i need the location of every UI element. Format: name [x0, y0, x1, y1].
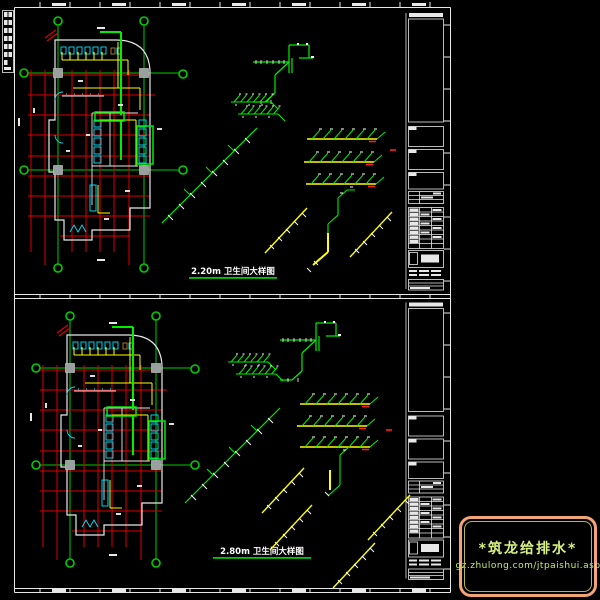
panel-top: 2.20m 卫生间大样图 — [18, 17, 396, 279]
drawing-title-bottom: 2.80m 卫生间大样图 — [220, 546, 304, 557]
drawing-title-top: 2.20m 卫生间大样图 — [191, 266, 275, 277]
cad-viewport: 2.20m 卫生间大样图 2.80m 卫生间大样图 *筑龙给排水* gz.zhu… — [0, 0, 600, 600]
zhulong-logo-box: *筑龙给排水* gz.zhulong.com/jtpaishui.asp — [459, 516, 597, 597]
legend-table — [3, 11, 14, 73]
drawing-title-bottom-underline — [213, 557, 311, 559]
title-block-top — [406, 13, 444, 290]
logo-url: gz.zhulong.com/jtpaishui.asp — [455, 562, 600, 571]
floor-plan-top — [18, 17, 187, 272]
panel-bottom: 2.80m 卫生间大样图 — [30, 312, 410, 588]
isometric-diagrams-top — [162, 43, 396, 272]
isometric-center-stack — [307, 150, 396, 272]
isometric-center-stack-bottom — [325, 430, 392, 496]
floor-plan-bottom — [30, 312, 199, 567]
panel-divider — [15, 295, 451, 589]
logo-title: *筑龙给排水* — [479, 542, 578, 556]
sheet-frame — [15, 2, 451, 593]
drawing-title-top-underline — [189, 277, 277, 279]
title-block-bottom — [406, 303, 444, 580]
cad-sheet: 2.20m 卫生间大样图 2.80m 卫生间大样图 — [0, 0, 600, 600]
